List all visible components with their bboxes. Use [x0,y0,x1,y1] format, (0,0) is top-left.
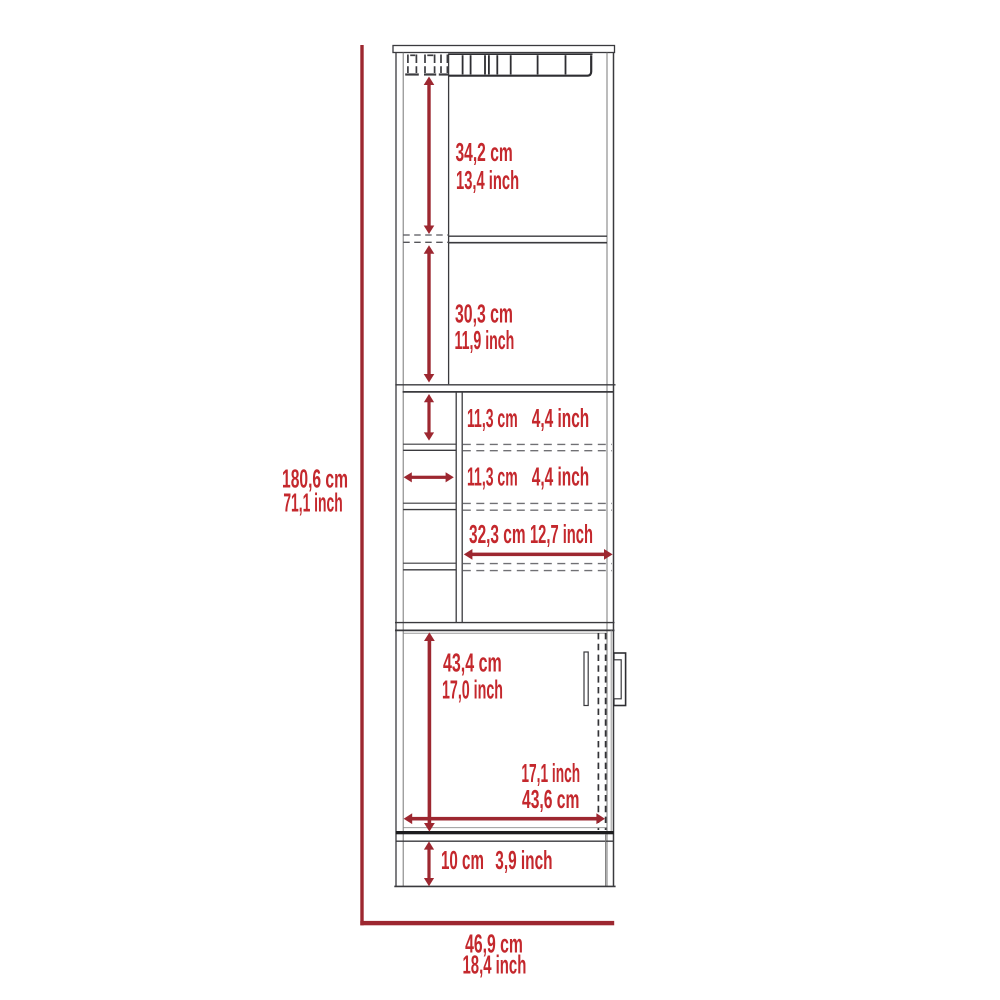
svg-text:12,7 inch: 12,7 inch [530,521,593,549]
svg-text:13,4 inch: 13,4 inch [456,167,519,195]
svg-text:10 cm: 10 cm [441,846,484,875]
svg-text:30,3 cm: 30,3 cm [455,300,513,329]
svg-text:43,6 cm: 43,6 cm [522,785,579,814]
svg-text:4,4 inch: 4,4 inch [532,462,589,491]
svg-text:43,4 cm: 43,4 cm [443,647,502,677]
svg-text:3,9 inch: 3,9 inch [495,846,552,875]
svg-text:34,2 cm: 34,2 cm [456,138,513,167]
svg-text:17,1 inch: 17,1 inch [521,759,580,788]
svg-text:4,4 inch: 4,4 inch [532,404,589,433]
svg-text:18,4 inch: 18,4 inch [462,951,526,979]
svg-text:32,3 cm: 32,3 cm [469,520,526,549]
svg-text:17,0 inch: 17,0 inch [442,676,503,705]
svg-text:11,3 cm: 11,3 cm [467,463,518,492]
svg-text:71,1 inch: 71,1 inch [283,489,342,518]
svg-text:11,9 inch: 11,9 inch [455,327,515,356]
svg-text:11,3 cm: 11,3 cm [467,405,518,434]
